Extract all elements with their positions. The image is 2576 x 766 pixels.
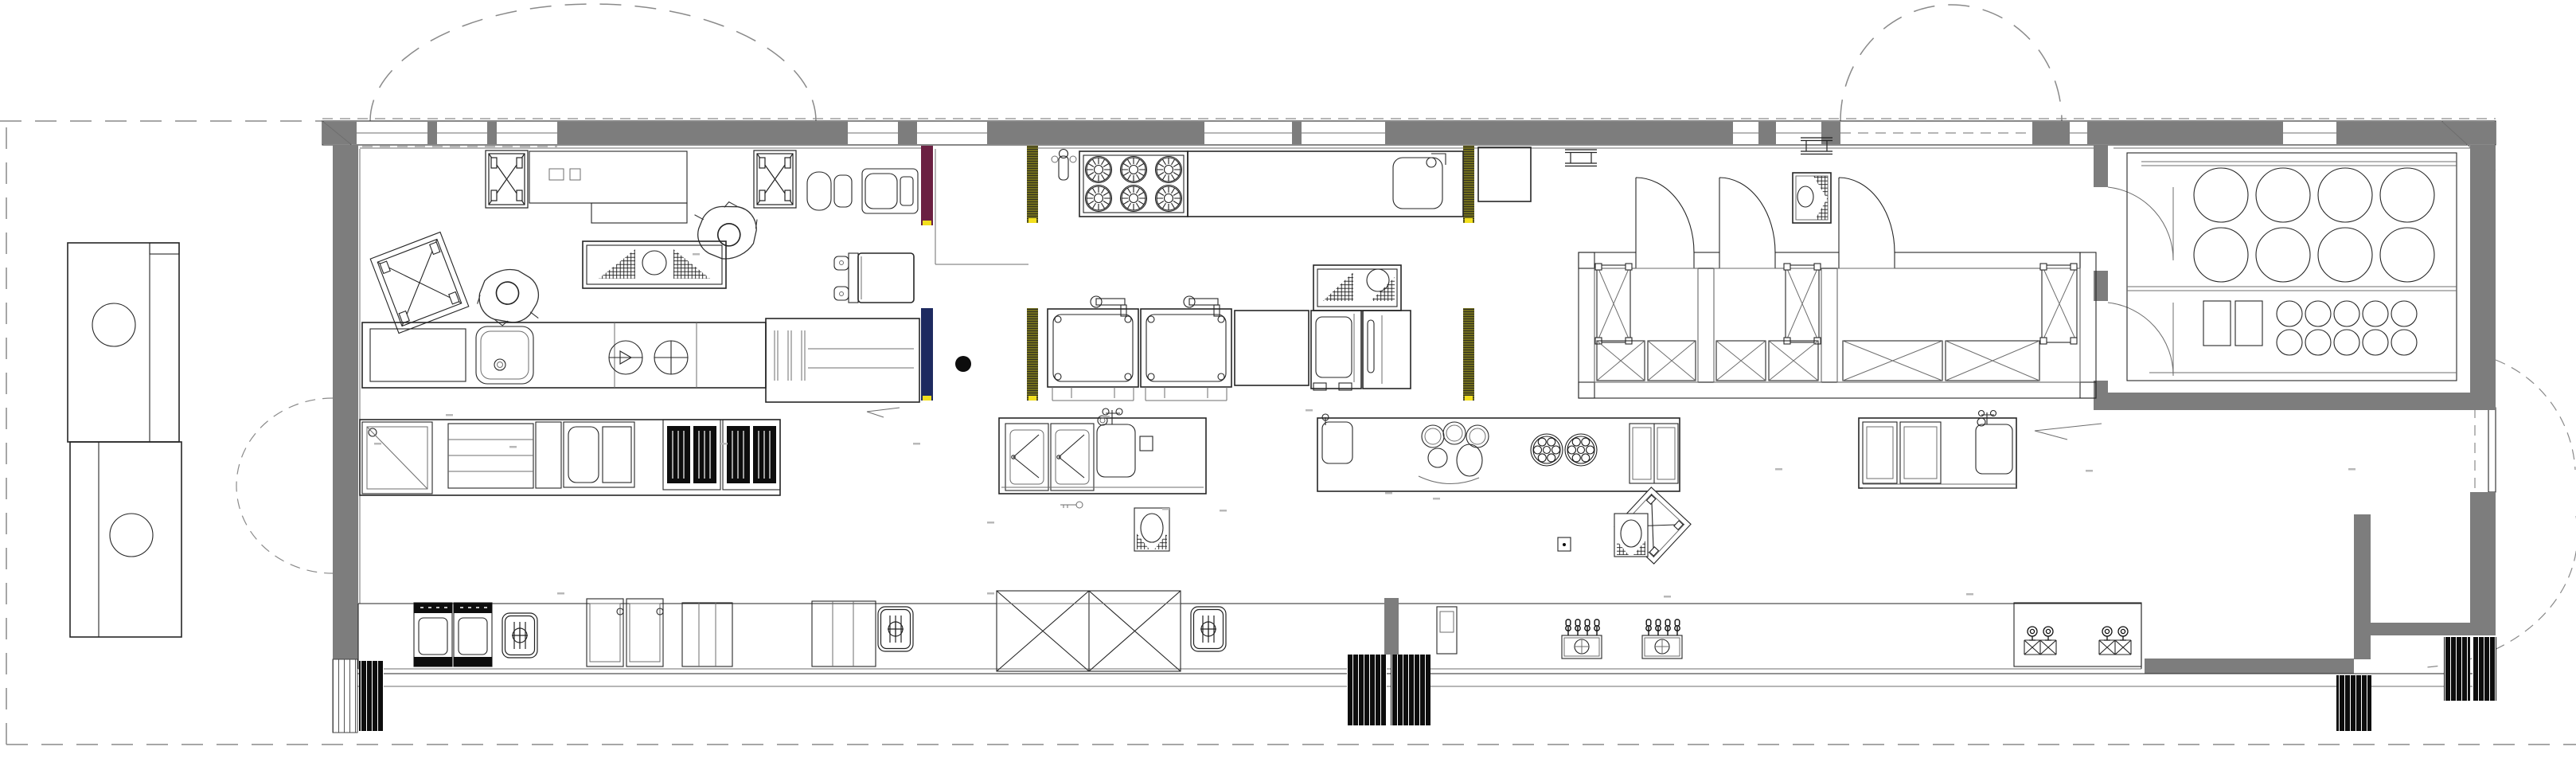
drop-in-sink	[502, 613, 537, 658]
column-bracket-icon	[1801, 138, 1832, 154]
stand-mixer	[834, 253, 914, 303]
combi-oven	[1311, 311, 1361, 390]
hand-sink	[1052, 150, 1076, 181]
steam-kettle	[1141, 296, 1231, 401]
meat-slicer	[862, 169, 918, 213]
pos-tower	[1437, 607, 1457, 654]
drain-box	[1140, 436, 1153, 451]
espresso-counter	[2014, 603, 2141, 666]
range-6-burner	[1079, 151, 1188, 217]
undercounter-cabinet	[1051, 424, 1094, 490]
evaporator-unit	[1793, 173, 1831, 223]
x-frame-table	[486, 150, 528, 208]
slope-arrow	[867, 408, 900, 417]
bar-front-wall	[2145, 659, 2354, 674]
drop-in-sink	[878, 607, 913, 651]
back-bar-left	[360, 408, 900, 495]
espresso-station	[2099, 627, 2131, 655]
site-boundary: Outdoor walkway / site boundary	[0, 4, 2576, 745]
perimeter-walls	[333, 145, 2496, 674]
wire-shelf-vertical	[1595, 264, 1632, 344]
entry-mat	[1391, 655, 1430, 725]
tank-room: Tank and keg storage room	[2127, 153, 2457, 381]
upright-unit	[587, 599, 623, 666]
window-mullion	[427, 122, 437, 144]
wire-shelves-bottom	[1597, 341, 2039, 381]
walkin-door	[1839, 178, 1895, 252]
olive-jamb	[1463, 308, 1474, 401]
yellow-tag	[923, 221, 931, 225]
yellow-tag	[1028, 218, 1036, 223]
yellow-tag	[1465, 396, 1473, 401]
slope-arrow	[2035, 424, 2102, 440]
tank-room-west-wall-a	[2094, 145, 2108, 187]
crate	[2203, 301, 2231, 346]
display-case	[454, 603, 492, 666]
cooking-line: Cooking line	[1048, 147, 1531, 401]
swing-arc-top-left	[370, 4, 816, 121]
storage-cabinet	[362, 422, 432, 494]
olive-jamb	[1027, 308, 1038, 401]
column-bracket-icon	[1565, 150, 1597, 166]
upright-unit	[626, 599, 663, 666]
pass-x-table	[997, 591, 1181, 671]
tilted-x-table	[370, 232, 469, 333]
wire-shelf-vertical	[1784, 264, 1821, 344]
olive-jamb	[1027, 146, 1038, 223]
narrow-unit	[536, 422, 561, 488]
back-bar-right	[1317, 411, 2102, 565]
yellow-tag	[1028, 396, 1036, 401]
beer-tap-station	[1642, 619, 1682, 659]
bottle-cooler	[663, 420, 720, 490]
structural-column	[955, 356, 971, 372]
wall-work-counter	[529, 151, 687, 223]
steamer-ring-station	[1419, 422, 1489, 484]
prep-kitchen: Prep kitchen	[360, 148, 2470, 402]
swing-arc-west-door	[236, 398, 333, 573]
warewash-counter: Warewash / pot wash	[999, 408, 1206, 551]
equipment-tag-marks	[374, 253, 2355, 598]
east-wall-upper	[2470, 145, 2496, 408]
floor-plan-canvas: Outdoor walkway / site boundary	[0, 0, 2576, 766]
espresso-station	[2024, 627, 2056, 655]
crate	[2235, 301, 2262, 346]
entry-mat-light	[333, 659, 357, 733]
entry-mat	[1347, 655, 1387, 725]
walkin-door	[1719, 178, 1775, 252]
pass-counter-lines	[935, 149, 1028, 264]
back-bar-sink	[1322, 414, 1352, 463]
glass-chiller	[682, 603, 732, 666]
walk-in-cold-rooms: Walk-in cold rooms	[1565, 138, 2096, 398]
bar-cabinets	[1630, 424, 1678, 483]
pot-table	[1313, 265, 1401, 311]
east-door-frame	[2488, 408, 2496, 492]
west-wall	[333, 145, 358, 659]
entry-mat	[2473, 637, 2496, 701]
key-drop	[1060, 502, 1083, 508]
yellow-tag	[1465, 218, 1473, 223]
entry-mat	[2336, 675, 2371, 731]
navy-jamb	[921, 308, 933, 401]
worker-figure	[471, 264, 544, 332]
large-tanks	[2194, 168, 2434, 282]
prep-counter-with-sink	[362, 322, 766, 388]
bar-end-pier	[2354, 514, 2371, 659]
entry-mat	[2444, 637, 2470, 701]
swing-arc-east-door-1	[2496, 360, 2575, 470]
entry-mat	[359, 661, 384, 731]
prep-table-with-boards	[583, 241, 726, 288]
north-wall	[322, 121, 2496, 170]
bottle-cooler	[723, 420, 780, 490]
pan-station	[564, 422, 634, 487]
tank-room-doors	[2108, 187, 2173, 376]
olive-jamb	[1463, 146, 1474, 223]
east-wall-lower	[2470, 492, 2496, 623]
south-wall-right	[2371, 623, 2496, 635]
waste-bin	[1134, 508, 1169, 551]
undercounter-cabinet	[1005, 424, 1048, 490]
burner-plate	[1531, 434, 1563, 466]
wall-finish-markers	[921, 146, 1474, 401]
walkin-door	[1636, 178, 1694, 252]
kegs	[2277, 301, 2417, 355]
wall-cabinet	[1478, 147, 1531, 201]
maroon-jamb	[921, 146, 933, 225]
counter-stub-wall	[1384, 598, 1399, 655]
open-shelf-unit	[448, 424, 533, 488]
wash-sink	[1097, 408, 1135, 477]
bar-cabinets-2	[1859, 418, 2016, 488]
beer-tap-station	[1562, 619, 1602, 659]
line-counter-with-sink	[1188, 151, 1463, 217]
wall-control-box	[1558, 537, 1571, 551]
external-storage-units	[68, 243, 181, 637]
window-mullion	[487, 122, 497, 144]
tank-room-south-wall	[2094, 393, 2496, 410]
waste-bin-2	[1614, 514, 1648, 557]
display-case	[414, 603, 452, 666]
grinder-station	[807, 172, 852, 210]
slicer-counter	[766, 319, 919, 402]
burner-plate	[1565, 434, 1597, 466]
steam-kettle	[1048, 296, 1138, 401]
wire-shelf-vertical	[2040, 264, 2077, 344]
swing-arc-top-right	[1840, 5, 2062, 121]
glass-chiller	[812, 601, 876, 666]
drop-in-sink	[1191, 607, 1226, 651]
landing-table	[1235, 311, 1309, 385]
holding-cabinet	[1363, 311, 1411, 389]
x-frame-table	[754, 150, 796, 208]
yellow-tag	[923, 396, 931, 401]
back-sink-2	[1976, 411, 2012, 475]
